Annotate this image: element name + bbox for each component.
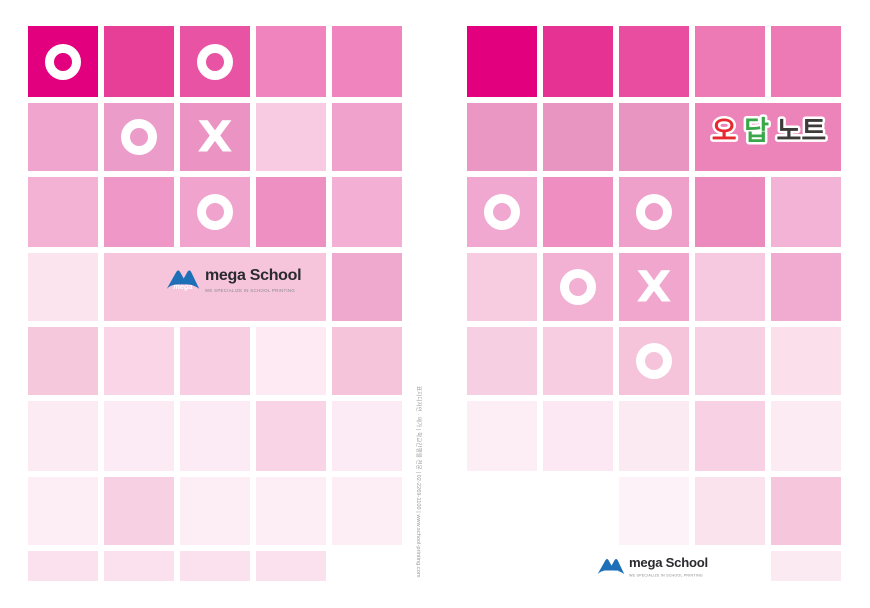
grid-cell: [619, 327, 689, 395]
grid-cell: [771, 253, 841, 321]
mega-school-logo-front: mega mega School WE SPECIALIZE IN SCHOOL…: [597, 557, 763, 579]
grid-cell: [695, 26, 765, 97]
grid-cell: [543, 253, 613, 321]
grid-cell: [619, 177, 689, 247]
grid-cell: [619, 401, 689, 471]
logo-text-block: mega School WE SPECIALIZE IN SCHOOL PRIN…: [205, 268, 369, 295]
grid-cell: [695, 327, 765, 395]
mega-logo-icon: mega: [166, 268, 200, 292]
grid-cell: [467, 401, 537, 471]
grid-cell: [467, 253, 537, 321]
title-part-dark: 노트: [777, 116, 827, 146]
logo-text-block: mega School WE SPECIALIZE IN SCHOOL PRIN…: [629, 557, 763, 579]
grid-cell: [771, 327, 841, 395]
cover-title-svg: 오 답 노트: [709, 113, 829, 149]
grid-cell: [695, 253, 765, 321]
grid-cell: [467, 26, 537, 97]
title-part-green: 답: [744, 116, 769, 146]
logo-tagline: WE SPECIALIZE IN SCHOOL PRINTING: [205, 288, 295, 293]
grid-cell: [543, 401, 613, 471]
spine-text: 표지디자인 · 메가 | 학교간행물 전문 | 02-2269-1100 | w…: [415, 386, 423, 578]
grid-cell: [467, 327, 537, 395]
grid-cell: [619, 103, 689, 171]
grid-cell: [695, 401, 765, 471]
o-symbol: [560, 269, 596, 305]
mega-icon-wordmark: mega: [173, 282, 192, 291]
grid-cell: X: [619, 253, 689, 321]
grid-cell: [543, 26, 613, 97]
grid-cell: [771, 401, 841, 471]
logo-tagline: WE SPECIALIZE IN SCHOOL PRINTING: [629, 573, 703, 577]
grid-cell: [695, 477, 765, 545]
grid-cell: [771, 551, 841, 581]
x-symbol: X: [636, 266, 671, 308]
o-symbol: [636, 343, 672, 379]
grid-cell: [771, 26, 841, 97]
grid-cell: [543, 327, 613, 395]
grid-cell: [771, 477, 841, 545]
grid-cell: [467, 103, 537, 171]
mega-logo-icon: mega: [597, 557, 625, 577]
front-cover-panel: X: [0, 0, 870, 608]
o-symbol: [636, 194, 672, 230]
cover-title-label: 오 답 노트: [709, 113, 829, 149]
o-symbol: [484, 194, 520, 230]
grid-cell: [771, 177, 841, 247]
logo-name: mega School: [205, 268, 369, 285]
cover-spread-canvas: X X mega mega School WE SPECIALIZE IN SC…: [0, 0, 870, 608]
svg-text:오 답 노트: 오 답 노트: [712, 116, 826, 146]
grid-cell: [619, 477, 689, 545]
title-part-red: 오: [712, 116, 737, 146]
grid-cell: [695, 177, 765, 247]
grid-cell: [619, 26, 689, 97]
logo-name: mega School: [629, 557, 763, 571]
grid-cell: [467, 177, 537, 247]
grid-cell: [543, 177, 613, 247]
mega-school-logo-back: mega mega School WE SPECIALIZE IN SCHOOL…: [166, 268, 369, 295]
grid-cell: [543, 103, 613, 171]
mega-icon-wordmark: mega: [603, 570, 619, 576]
